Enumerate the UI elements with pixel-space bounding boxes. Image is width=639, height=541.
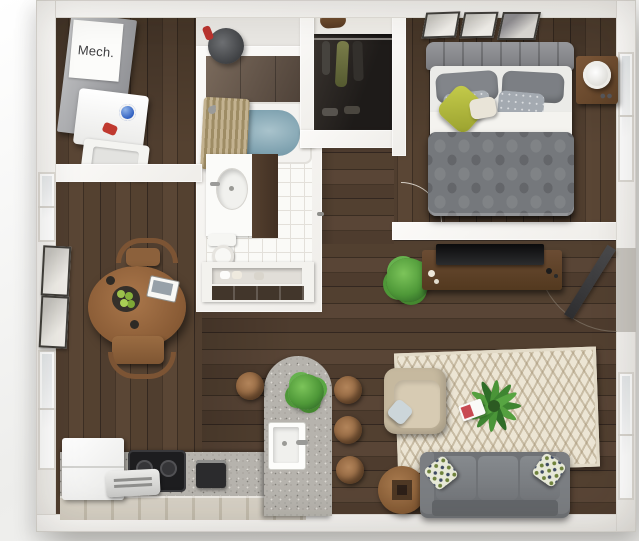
window-living-right bbox=[618, 372, 634, 500]
window-bedroom-right bbox=[618, 52, 634, 182]
sofa bbox=[420, 452, 570, 518]
closet-bottom-wall bbox=[300, 130, 404, 148]
window-bedroom-bar bbox=[618, 115, 634, 117]
sink-drain bbox=[229, 186, 234, 191]
dining-wall-frame-1 bbox=[41, 245, 72, 296]
bed-duvet bbox=[428, 132, 574, 216]
tv bbox=[436, 244, 544, 265]
coffee-mug-2 bbox=[130, 320, 139, 329]
island-faucet-icon bbox=[296, 440, 308, 445]
island-plant bbox=[288, 374, 324, 410]
coffee-table-tray bbox=[392, 480, 412, 500]
toaster-slots bbox=[114, 477, 152, 482]
fridge-door-seam bbox=[62, 466, 124, 468]
bedroom-wall-frame-2 bbox=[459, 12, 498, 39]
detergent-bottle bbox=[118, 103, 137, 122]
bar-stool-2 bbox=[334, 416, 362, 444]
sofa-cushion-2 bbox=[478, 456, 518, 500]
coffee-maker bbox=[196, 460, 226, 488]
floor-fan bbox=[208, 28, 244, 64]
rolled-towels bbox=[220, 271, 230, 279]
console-remote bbox=[546, 268, 552, 274]
mech-room-label: Mech. bbox=[69, 20, 124, 82]
floor-wood-hallway bbox=[318, 144, 394, 244]
console-candles bbox=[428, 270, 435, 277]
toaster bbox=[105, 469, 160, 498]
bedroom-left-wall bbox=[392, 14, 406, 156]
coffee-table bbox=[378, 466, 426, 514]
island-sink-drain bbox=[282, 441, 287, 446]
towel-shelf-drawers bbox=[212, 286, 304, 300]
bar-stool-3 bbox=[336, 456, 364, 484]
bedroom-wall-frame-3 bbox=[497, 12, 541, 40]
floor-plan-scene: Mech. bbox=[0, 0, 639, 541]
bedroom-wall-frame-1 bbox=[422, 11, 461, 38]
shower-head-icon bbox=[208, 106, 216, 114]
dining-wall-frame-2 bbox=[39, 295, 70, 348]
hanging-garment-green bbox=[335, 41, 349, 88]
dining-chair-top-seat bbox=[126, 248, 160, 266]
fruit-bowl bbox=[112, 286, 140, 312]
island-sink bbox=[268, 422, 306, 470]
closet-shoes bbox=[322, 108, 338, 116]
reading-glasses bbox=[599, 93, 613, 99]
closet-rod bbox=[314, 38, 392, 40]
sofa-back bbox=[432, 500, 558, 516]
window-left-lower-bar bbox=[38, 408, 56, 410]
closet-left-wall bbox=[300, 14, 314, 148]
tray-item bbox=[397, 485, 407, 495]
bar-stool-left bbox=[236, 372, 264, 400]
magazine-cover bbox=[461, 404, 475, 419]
bar-stool-1 bbox=[334, 376, 362, 404]
vanity-faucet-icon bbox=[210, 182, 220, 186]
hanging-garment-gray bbox=[322, 41, 330, 75]
laundry-red-item bbox=[102, 122, 119, 137]
outer-wall-top bbox=[36, 0, 636, 18]
window-left-lower bbox=[38, 350, 56, 470]
window-living-bar bbox=[618, 434, 634, 436]
vanity-wood-side bbox=[252, 154, 278, 238]
table-lamp bbox=[583, 61, 611, 89]
window-left-upper-bar bbox=[38, 206, 56, 208]
bathroom-door-handle bbox=[317, 212, 324, 216]
tablet-screen bbox=[151, 280, 173, 296]
armchair bbox=[384, 368, 446, 434]
burner-2 bbox=[160, 460, 177, 477]
green-apples bbox=[117, 290, 125, 298]
hanging-garment-dark bbox=[352, 41, 363, 81]
bedroom-bottom-wall bbox=[392, 222, 620, 240]
laundry-dining-wall bbox=[54, 164, 202, 182]
coffee-mug-1 bbox=[106, 276, 115, 285]
entry-door-opening bbox=[616, 248, 636, 332]
